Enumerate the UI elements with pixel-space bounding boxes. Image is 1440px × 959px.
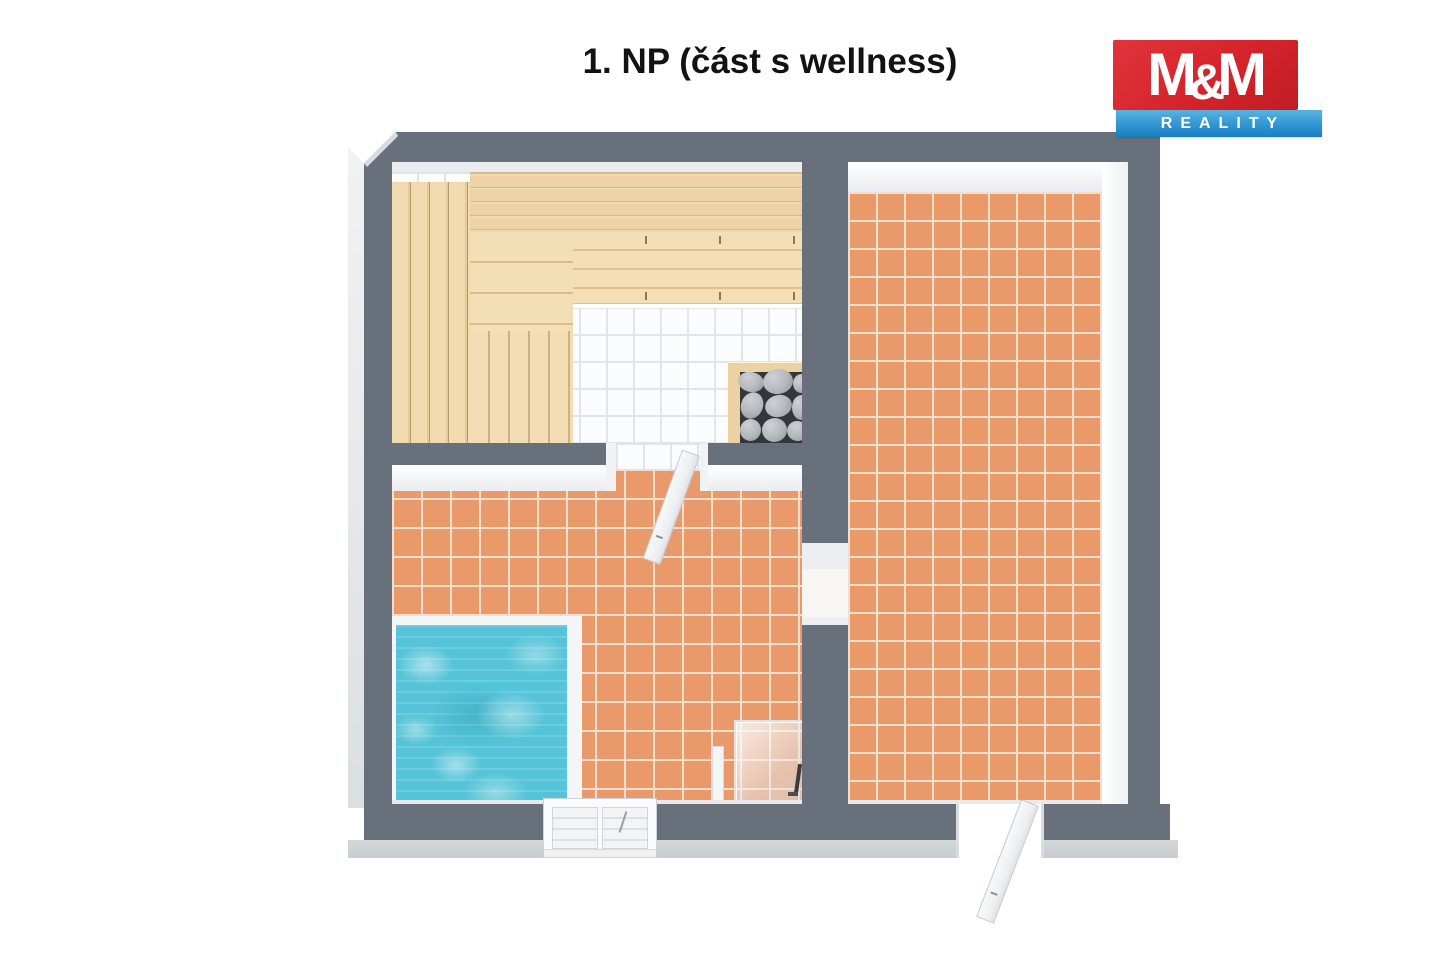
sauna-wall-front-face-left: [390, 465, 616, 491]
wall-bottom: [364, 804, 1170, 840]
page-title: 1. NP (část s wellness): [400, 42, 1140, 82]
wall-top: [364, 132, 1160, 162]
logo-tagline-bar: REALITY: [1116, 110, 1322, 137]
sauna-lower-bench: [573, 232, 802, 308]
logo-letter-m: M: [1147, 45, 1194, 105]
mm-reality-logo: M & M: [1113, 40, 1298, 110]
floorplan-page: { "header": { "title": "1. NP (část s we…: [0, 0, 1440, 959]
sauna-wall-front-face-right: [700, 465, 802, 491]
sauna-upper-bench: [470, 172, 802, 234]
wall-sauna-south-right: [700, 443, 802, 465]
shower-drain: [788, 792, 798, 796]
window-sill: [544, 849, 656, 857]
mid-wall-face: [802, 543, 848, 569]
sauna-top-wall-face: [390, 162, 802, 172]
wall-left: [364, 132, 392, 804]
wall-middle-upper: [802, 132, 848, 543]
outer-bevel-left: [348, 132, 364, 808]
bench-plank-gaps: [573, 292, 802, 300]
mid-doorway-threshold: [802, 569, 848, 621]
wall-right: [1128, 132, 1160, 840]
pool-water: [396, 625, 567, 804]
shower-side-panel: [712, 746, 724, 806]
logo-ampersand: &: [1189, 57, 1222, 107]
wall-middle-lower: [802, 625, 848, 804]
right-room-floor: [848, 192, 1102, 804]
logo-letter-m: M: [1217, 45, 1264, 105]
right-wall-inner-face: [1102, 162, 1128, 804]
door-handle: [656, 535, 663, 539]
sauna-corner-bench-front: [470, 331, 573, 443]
pool: [392, 616, 582, 804]
right-room-top-wall-face: [848, 162, 1102, 192]
window: [543, 798, 657, 858]
wall-middle-lower-lip: [802, 617, 848, 625]
window-sash-left: [552, 807, 598, 849]
wall-sauna-south-left: [390, 443, 616, 465]
bench-plank-gaps: [573, 236, 802, 244]
sauna-door-jamb-right: [700, 443, 708, 491]
sauna-door-jamb-left: [606, 443, 616, 491]
outer-bevel-bottom: [348, 840, 1178, 858]
door-handle: [990, 892, 997, 896]
sauna-side-bench-planks: [392, 182, 470, 443]
sauna-corner-bench: [470, 232, 573, 331]
